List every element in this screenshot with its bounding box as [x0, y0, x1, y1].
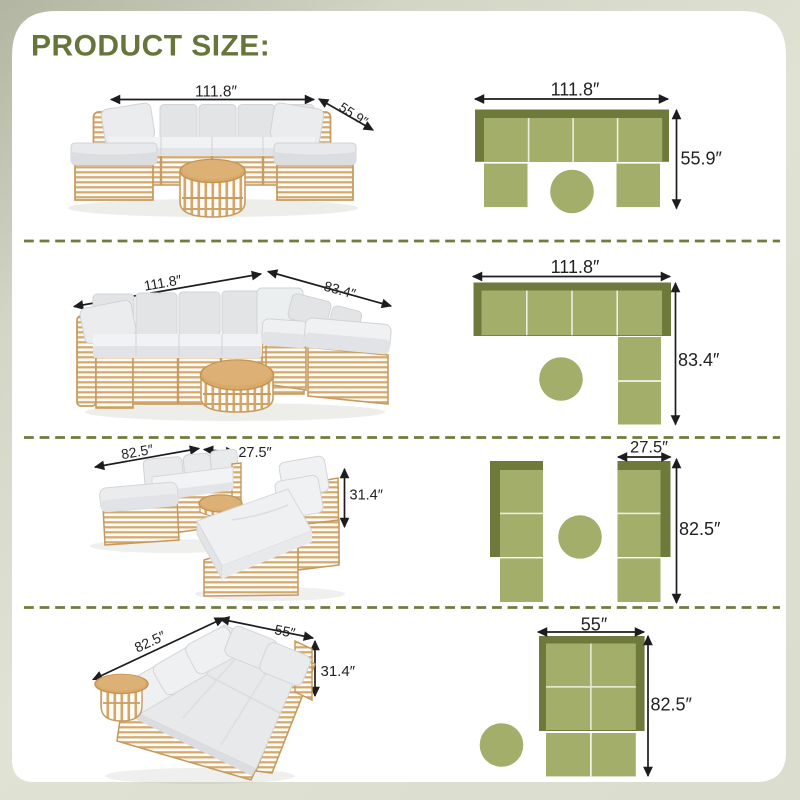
svg-text:27.5″: 27.5″: [630, 439, 668, 457]
svg-text:31.4″: 31.4″: [321, 663, 356, 680]
svg-text:111.8″: 111.8″: [195, 84, 237, 101]
svg-text:55″: 55″: [581, 615, 608, 635]
svg-text:27.5″: 27.5″: [238, 445, 271, 461]
svg-text:PRODUCT SIZE:: PRODUCT SIZE:: [31, 30, 270, 63]
svg-text:31.4″: 31.4″: [350, 488, 383, 504]
svg-text:82.5″: 82.5″: [679, 519, 721, 539]
svg-text:111.8″: 111.8″: [551, 80, 600, 100]
svg-text:83.4″: 83.4″: [678, 350, 720, 370]
svg-text:55.9″: 55.9″: [681, 149, 723, 169]
svg-text:82.5″: 82.5″: [651, 695, 693, 715]
svg-text:111.8″: 111.8″: [551, 257, 600, 277]
